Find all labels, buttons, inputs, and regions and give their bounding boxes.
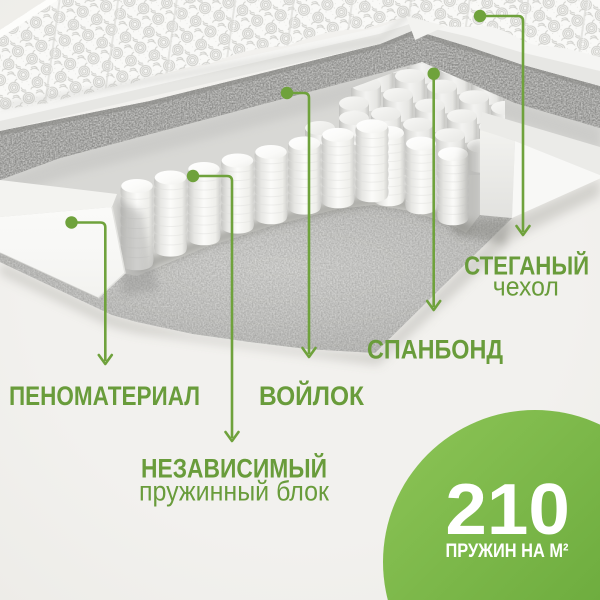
svg-text:ВОЙЛОК: ВОЙЛОК xyxy=(259,380,364,411)
svg-text:ПРУЖИН НА М²: ПРУЖИН НА М² xyxy=(446,541,569,562)
svg-text:ПЕНОМАТЕРИАЛ: ПЕНОМАТЕРИАЛ xyxy=(9,381,200,411)
svg-text:210: 210 xyxy=(445,470,570,550)
svg-text:чехол: чехол xyxy=(493,272,559,302)
svg-text:пружинный блок: пружинный блок xyxy=(139,476,330,507)
svg-text:СПАНБОНД: СПАНБОНД xyxy=(367,335,503,365)
